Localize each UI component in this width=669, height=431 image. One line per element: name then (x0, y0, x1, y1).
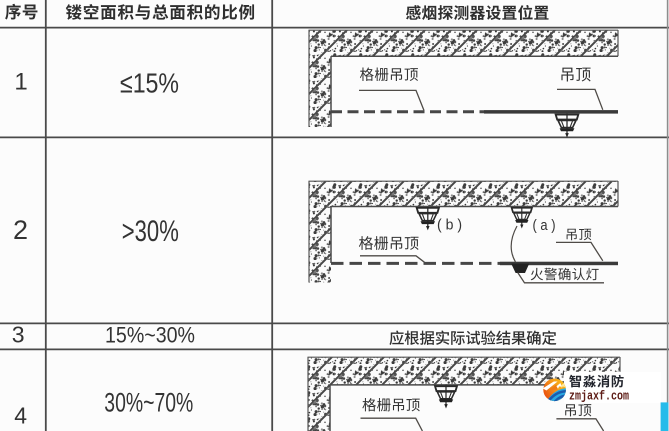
svg-text:4: 4 (14, 403, 27, 429)
svg-text:( a ): ( a ) (533, 217, 556, 234)
svg-text:>30%: >30% (122, 215, 179, 248)
svg-text:( b ): ( b ) (437, 217, 462, 234)
svg-text:zmjaxf.com: zmjaxf.com (569, 390, 629, 404)
svg-text:2: 2 (13, 215, 28, 245)
svg-text:30%~70%: 30%~70% (104, 388, 193, 418)
svg-text:≤15%: ≤15% (120, 67, 179, 98)
svg-text:1: 1 (14, 68, 27, 95)
svg-text:3: 3 (12, 322, 25, 348)
svg-text:15%~30%: 15%~30% (105, 322, 195, 347)
